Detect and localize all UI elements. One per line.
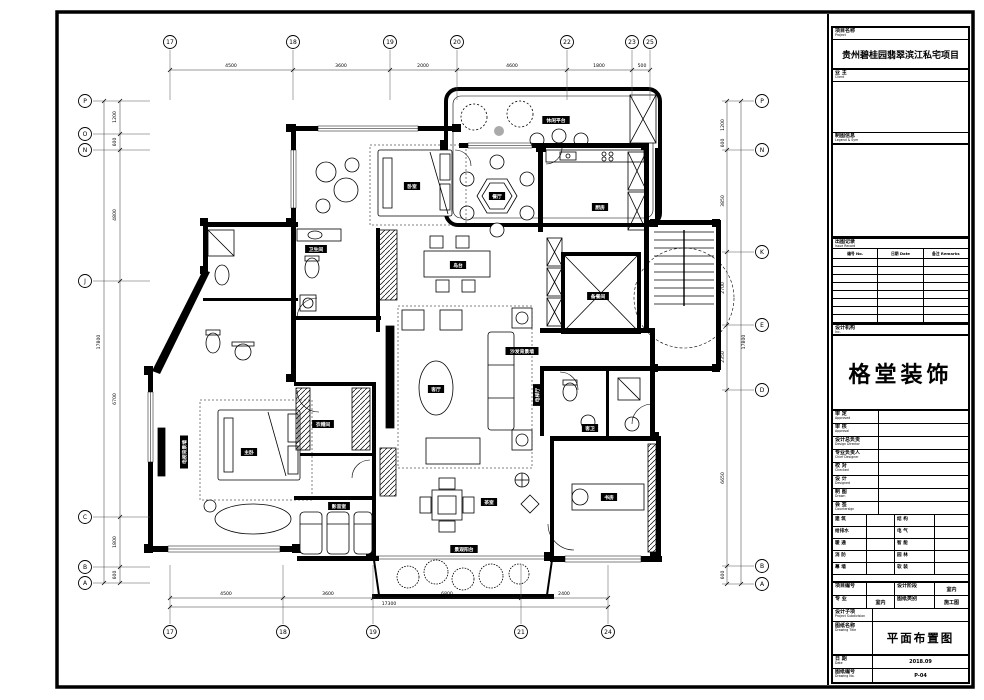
room-label: 电视背景墙: [180, 436, 188, 469]
drawing-no-row: 图纸编号Drawing No. P-04: [833, 669, 968, 682]
project-label: 项目名称Project: [833, 28, 968, 40]
subitem-row: 设计子项Project Subdivision: [833, 609, 968, 622]
axis-bubble-label: 19: [369, 629, 377, 636]
issue-row: [833, 283, 968, 291]
axis-bubble-label: N: [83, 147, 88, 154]
axis-bubble-label: 23: [628, 39, 636, 46]
company-logo: 格堂装饰: [833, 335, 968, 411]
dim-text: 6700: [112, 393, 118, 405]
dim-total: 17300: [382, 601, 397, 607]
spacer: [833, 575, 968, 583]
axis-bubble-label: O: [83, 131, 88, 138]
room-label-text: 岛台: [453, 262, 463, 269]
drawing-title: 平面布置图: [873, 622, 968, 654]
signature-field-row: 审 核Approval: [833, 424, 968, 437]
dim-text: 4500: [225, 63, 237, 69]
dim-total: 17800: [96, 335, 102, 350]
legend-box: [833, 145, 968, 237]
room-label: 衣帽间: [312, 420, 334, 428]
room-label-text: 厨房: [595, 204, 605, 211]
room-label: 休闲平台: [542, 116, 569, 124]
dim-text: 3600: [335, 63, 347, 69]
issue-label: 出图记录Issue Record: [833, 237, 968, 249]
room-label: 岛台: [450, 261, 466, 269]
room-label: 景观阳台: [450, 545, 477, 553]
axis-bubble-label: 22: [563, 39, 571, 46]
room-label-text: 客卫: [584, 425, 595, 432]
axis-bubble-label: 18: [279, 629, 287, 636]
room-label-text: 影音室: [332, 503, 347, 510]
dim-text: 6650: [720, 472, 726, 484]
firm-label: 设计机构Inc.: [833, 323, 968, 335]
dim-text: 600: [112, 138, 118, 147]
dim-text: 600: [112, 571, 118, 580]
room-label: 卫生间: [305, 245, 327, 253]
room-label-text: 卧室: [407, 183, 417, 190]
signature-field-row: 校 对Checked: [833, 463, 968, 476]
drawing-title-row: 图纸名称Drawing Title 平面布置图: [833, 622, 968, 656]
dim-text: 1800: [112, 536, 118, 548]
room-label: 客卫: [582, 424, 598, 432]
meta-row-2: 专 业 室内 图纸类别 施工图: [833, 596, 968, 609]
date-row: 日 期Date 2018.09: [833, 656, 968, 669]
axis-bubble-label: 17: [166, 39, 174, 46]
client-box: [833, 82, 968, 133]
axis-bubble-label: 17: [166, 629, 174, 636]
dim-text: 1800: [593, 63, 605, 69]
signature-field-row: 设计总负责Design Director: [833, 437, 968, 450]
drawing-sheet: 171819202223251718192124PONJCBAPNKEDBA 4…: [0, 0, 984, 700]
dim-text: 500: [638, 63, 647, 69]
meta-row-1: 项目编号 设计阶段 室内: [833, 583, 968, 596]
dim-total: 17800: [741, 335, 747, 350]
room-label-text: 景观阳台: [454, 546, 473, 553]
room-label-text: 客厅: [430, 386, 441, 393]
dim-text: 1200: [112, 111, 118, 123]
dim-text: 3600: [322, 591, 334, 597]
axis-bubble-label: 20: [453, 39, 461, 46]
legend-label: 制图信息Legend & Sym: [833, 133, 968, 145]
axis-bubble-label: 18: [289, 39, 297, 46]
room-label-text: 餐厅: [491, 193, 502, 200]
issue-row: [833, 275, 968, 283]
room-label-text: 电视背景墙: [181, 440, 188, 464]
discipline-row: 幕 墙软 装: [833, 563, 968, 575]
axis-bubble-label: B: [83, 564, 87, 571]
dim-text: 2400: [558, 591, 570, 597]
dim-text: 2000: [417, 63, 429, 69]
room-label: 主卧: [241, 448, 257, 456]
room-label-text: 沙发背景墙: [510, 348, 534, 355]
signature-field-row: 制 图Drawn: [833, 489, 968, 502]
issue-row: [833, 299, 968, 307]
issue-row: [833, 307, 968, 315]
dim-text: 2700: [720, 282, 726, 294]
axis-bubble-label: 21: [517, 629, 525, 636]
room-label: 书房: [601, 493, 617, 501]
room-label: 茶室: [481, 498, 497, 506]
room-label-text: 主卧: [244, 449, 254, 456]
axis-bubble-label: 19: [386, 39, 394, 46]
room-label-text: 休闲平台: [545, 117, 565, 124]
axis-bubble-label: 24: [604, 629, 612, 636]
axis-bubble-label: P: [83, 98, 87, 105]
dim-text: 6800: [441, 591, 453, 597]
issue-row: [833, 291, 968, 299]
dim-text: 4500: [220, 591, 232, 597]
signature-fields: 审 定Approved审 核Approval设计总负责Design Direct…: [833, 411, 968, 515]
client-label: 业 主Client: [833, 70, 968, 82]
signature-field-row: 会 签Countersign: [833, 502, 968, 515]
room-label: 电梯厅: [533, 384, 541, 406]
room-label-text: 电梯厅: [534, 388, 541, 403]
room-label-text: 茶室: [483, 499, 494, 506]
room-label-text: 备餐间: [590, 293, 606, 300]
discipline-fields: 建 筑结 构给排水电 气暖 通智 能消 防园 林幕 墙软 装: [833, 515, 968, 575]
room-label-text: 书房: [604, 494, 614, 501]
dim-text: 4600: [506, 63, 518, 69]
discipline-row: 暖 通智 能: [833, 539, 968, 551]
axis-bubble-label: E: [760, 322, 764, 329]
issue-table-header: 编号 No.日期 Date备注 Remarks: [833, 249, 968, 259]
dim-text: 4800: [112, 209, 118, 221]
issue-table-rows: [833, 259, 968, 323]
issue-col-header: 备注 Remarks: [924, 249, 968, 258]
issue-row: [833, 315, 968, 323]
room-label-text: 卫生间: [309, 246, 324, 253]
axis-bubble-label: P: [760, 98, 764, 105]
project-name: 贵州碧桂园翡翠滨江私宅项目: [833, 40, 968, 70]
room-label: 客厅: [428, 385, 444, 393]
room-label: 厨房: [592, 203, 608, 211]
issue-col-header: 日期 Date: [878, 249, 923, 258]
room-label: 卧室: [404, 182, 420, 190]
discipline-row: 建 筑结 构: [833, 515, 968, 527]
discipline-row: 消 防园 林: [833, 551, 968, 563]
axis-bubble-label: 25: [646, 39, 654, 46]
axis-bubble-label: D: [760, 387, 765, 394]
axis-bubble-label: C: [83, 514, 87, 521]
dim-text: 600: [720, 571, 726, 580]
discipline-row: 给排水电 气: [833, 527, 968, 539]
room-label: 备餐间: [587, 292, 609, 300]
room-label: 沙发背景墙: [506, 347, 539, 355]
dim-text: 3850: [720, 195, 726, 207]
axis-bubble-label: J: [83, 278, 86, 285]
axis-bubble-label: N: [760, 147, 765, 154]
issue-row: [833, 267, 968, 275]
room-label: 餐厅: [489, 192, 505, 200]
signature-field-row: 专业负责人Chief Designer: [833, 450, 968, 463]
issue-col-header: 编号 No.: [833, 249, 878, 258]
signature-field-row: 设 计Designed: [833, 476, 968, 489]
dim-text: 1200: [720, 119, 726, 131]
dim-text: 2350: [720, 351, 726, 363]
axis-bubble-label: B: [760, 563, 764, 570]
room-label: 影音室: [328, 502, 350, 510]
dim-text: 600: [720, 139, 726, 148]
title-block: 项目名称Project 贵州碧桂园翡翠滨江私宅项目 业 主Client 制图信息…: [831, 26, 970, 684]
room-label-text: 衣帽间: [316, 421, 331, 428]
signature-field-row: 审 定Approved: [833, 411, 968, 424]
issue-row: [833, 259, 968, 267]
